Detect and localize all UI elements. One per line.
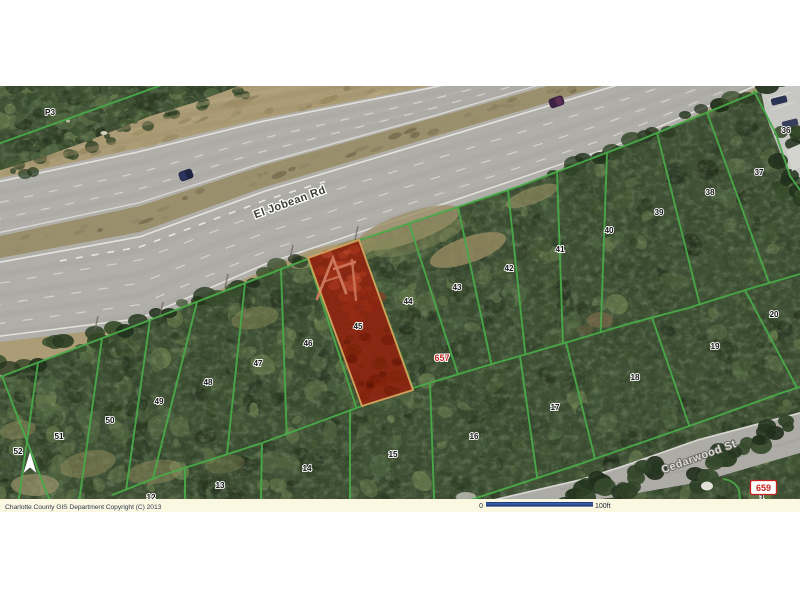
svg-text:659: 659 (756, 483, 771, 493)
svg-text:14: 14 (302, 464, 312, 473)
svg-text:42: 42 (504, 264, 514, 273)
svg-text:13: 13 (215, 481, 225, 490)
svg-text:15: 15 (388, 450, 398, 459)
svg-text:657: 657 (434, 353, 449, 363)
svg-text:18: 18 (630, 373, 640, 382)
svg-text:45: 45 (353, 322, 363, 331)
svg-text:43: 43 (452, 283, 462, 292)
svg-text:41: 41 (555, 245, 565, 254)
svg-text:Charlotte County GIS Departmen: Charlotte County GIS Department Copyrigh… (5, 504, 162, 511)
svg-text:0: 0 (479, 503, 483, 510)
svg-text:100ft: 100ft (595, 503, 611, 510)
svg-text:17: 17 (550, 403, 560, 412)
svg-text:47: 47 (253, 359, 263, 368)
svg-text:52: 52 (13, 447, 23, 456)
svg-text:39: 39 (654, 208, 664, 217)
svg-text:36: 36 (781, 126, 791, 135)
svg-text:51: 51 (54, 432, 64, 441)
svg-text:16: 16 (469, 432, 479, 441)
svg-text:37: 37 (754, 168, 764, 177)
svg-text:20: 20 (769, 310, 779, 319)
svg-text:46: 46 (303, 339, 313, 348)
svg-text:38: 38 (705, 188, 715, 197)
svg-text:P3: P3 (45, 108, 55, 117)
svg-text:48: 48 (203, 378, 213, 387)
svg-text:49: 49 (154, 397, 164, 406)
svg-text:44: 44 (403, 297, 413, 306)
svg-text:50: 50 (105, 416, 115, 425)
svg-text:40: 40 (604, 226, 614, 235)
svg-text:19: 19 (710, 342, 720, 351)
